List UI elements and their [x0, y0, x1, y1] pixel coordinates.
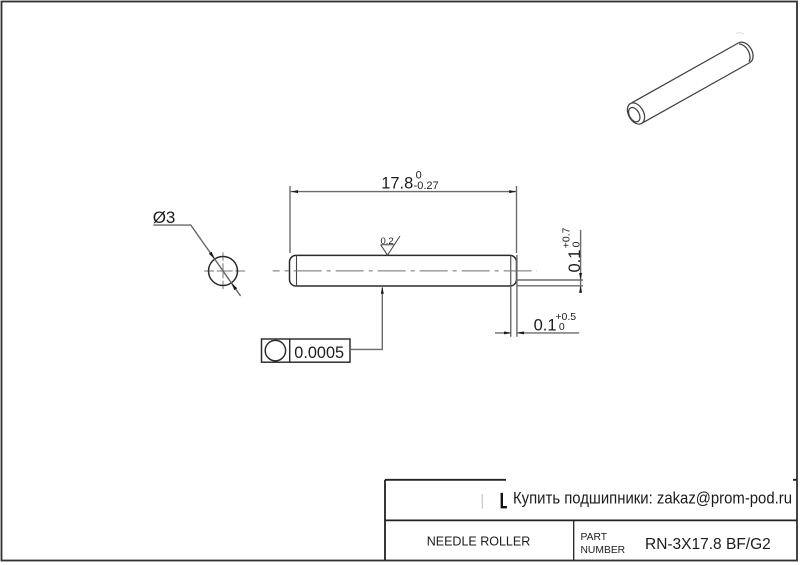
- svg-text:0.1: 0.1: [566, 250, 584, 273]
- svg-text:0.2: 0.2: [381, 236, 394, 247]
- svg-text:RN-3X17.8 BF/G2: RN-3X17.8 BF/G2: [645, 536, 771, 553]
- svg-text:17.8: 17.8: [381, 175, 413, 193]
- svg-text:-0.27: -0.27: [414, 180, 439, 192]
- svg-text:0: 0: [559, 321, 565, 333]
- svg-text:NEEDLE ROLLER: NEEDLE ROLLER: [427, 535, 531, 549]
- svg-text:0.0005: 0.0005: [294, 344, 344, 362]
- svg-text:NUMBER: NUMBER: [581, 545, 626, 556]
- svg-text:Купить подшипники: zakaz@prom-: Купить подшипники: zakaz@prom-pod.ru: [513, 489, 792, 508]
- svg-text:PART: PART: [581, 532, 608, 543]
- svg-text:0: 0: [571, 241, 583, 247]
- svg-text:0.1: 0.1: [534, 317, 557, 335]
- svg-text:Ø3: Ø3: [153, 208, 176, 227]
